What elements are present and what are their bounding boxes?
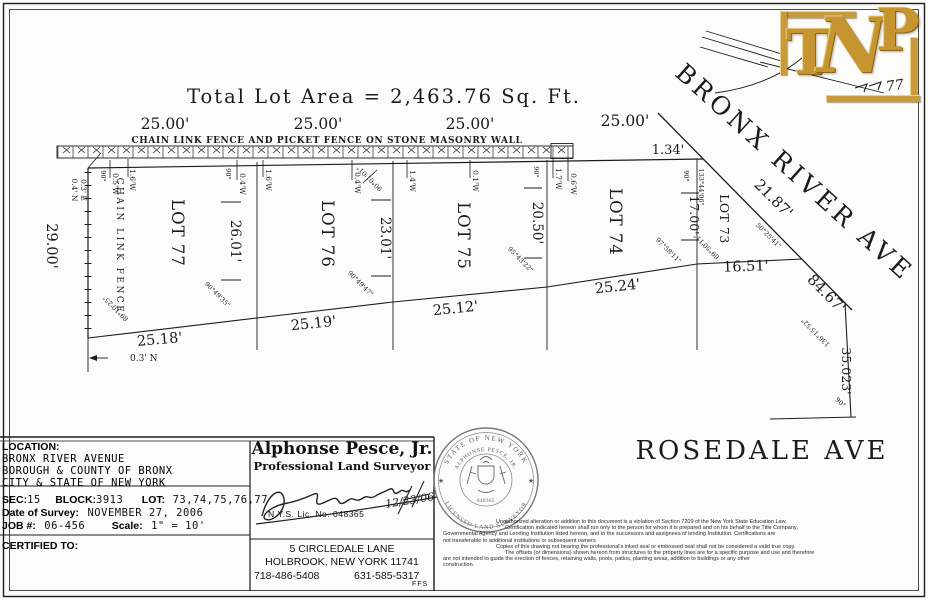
offset-04w-a: 0.4'W [238,173,247,195]
depth-2050: 20.50' [529,202,545,244]
license-number: N.Y.S. Lic. No. 048365 [268,509,364,519]
scale-label: Scale: [112,520,143,532]
offset-06w: 0.6'W [569,173,578,195]
offset-01w: 0.1'W [471,170,480,192]
bronx-dim-8467: 84.67' [804,270,850,316]
location-line-1: BRONX RIVER AVENUE [2,453,125,465]
lot-74-label: LOT 74 [606,188,625,256]
rosedale-ave-line [770,417,856,419]
frontage-dim-1: 25.00' [141,115,190,133]
fence-note: CHAIN LINK FENCE AND PICKET FENCE ON STO… [132,136,523,146]
surveyor-phone-2: 631-585-5317 [354,570,419,582]
angle-90-b: 90° [224,168,232,180]
surveyor-title: Professional Land Surveyor [250,459,434,473]
chain-link-fence-label: CHAIN LINK FENCE [114,178,124,315]
seal-crest [467,457,506,493]
surveyor-seal: STATE OF NEW YORK ALPHONSE PESCE, JR. LI… [434,428,538,532]
location-label: LOCATION: [2,441,60,453]
lot-75-label: LOT 75 [454,202,473,270]
angle-90-e: 90° [834,396,848,410]
location-line-3: CITY & STATE OF NEW YORK [2,477,166,489]
certified-to-label: CERTIFIED TO: [2,540,78,552]
surveyor-address-2: HOLBROOK, NEW YORK 11741 [250,556,434,568]
survey-document: Total Lot Area = 2,463.76 Sq. Ft. CHAIN … [0,0,928,600]
surveyor-phone-1: 718-486-5408 [254,570,319,582]
total-area-title: Total Lot Area = 2,463.76 Sq. Ft. [187,85,581,108]
depth-2301: 23.01' [377,217,393,259]
angle-90-a: 90° [99,170,107,182]
logo-bracket-bottom-icon [826,95,920,102]
offset-17w: 1.7'W [554,168,563,190]
angle-90-d: 90° [682,170,690,182]
frontage-dim-2: 25.00' [294,115,343,133]
surveyor-name: Alphonse Pesce, Jr. [250,439,434,459]
offset-05w: 0.5'W [111,173,120,195]
frontage-dim-4: 25.00' [601,112,650,130]
rosedale-ave-label: ROSEDALE AVE [635,436,888,466]
offset-14w: 1.4'W [408,170,417,192]
lot-76-label: LOT 76 [318,200,337,268]
rear-2524: 25.24' [594,277,641,298]
angle-1361552: 136°15'52" [800,317,832,349]
surveyor-address-1: 5 CIRCLEDALE LANE [250,543,434,555]
angle-1334406: 133°44'06" [697,169,705,206]
rear-1651: 16.51' [723,258,769,276]
initials: FFS [412,581,428,588]
logo-letter-p: P [876,1,920,59]
seal-star-right: ★ [528,477,534,485]
seal-license-number: 048365 [477,499,495,504]
angle-90-c: 90° [532,166,540,178]
job-scale-row: JOB #: 06-456 Scale: 1" = 10' [2,516,206,534]
angle-904947: 90°49'47" [346,269,375,298]
angle-695011: 69°50'11" [692,232,721,261]
corner-offset-n: 0.4' N [70,179,79,202]
rear-2519: 25.19' [290,314,337,335]
rear-boundary-line [88,259,802,338]
angle-975811: 97°58'11" [654,236,683,265]
east-dim-35023: 35.023' [839,347,854,394]
frontage-dim-3: 25.00' [446,115,495,133]
corner-offset-e: 0.3' E [79,179,88,201]
rear-2512: 25.12' [432,299,479,320]
offset-16w-a: 1.6'W [128,169,137,191]
front-boundary-line [88,159,703,168]
rear-2518: 25.18' [136,330,183,350]
offset-16w-b: 1.6'W [264,169,273,191]
depth-29: 29.00' [43,223,59,269]
lot-77-label: LOT 77 [168,199,187,267]
scale-value: 1" = 10' [151,520,206,532]
disclaimer-line: construction. [443,562,842,568]
job-value: 06-456 [44,520,85,532]
depth-2601: 26.01' [227,220,243,262]
north-offset-label: 0.3' N [130,354,158,364]
seal-star-left: ★ [438,477,444,485]
lot73-front-dim: 1.34' [652,143,685,158]
tnp-logo: T N P [770,0,928,112]
logo-scribble-77: 77 [885,77,905,95]
angle-904935: 90°49'35" [203,280,232,309]
disclaimer-block: Unauthorized alteration or addition to t… [440,519,842,569]
north-offset-arrow [89,355,108,361]
angle-954322: 95°43'22" [506,245,535,274]
lot-73-label: LOT 73 [717,194,732,244]
job-label: JOB #: [2,520,36,532]
location-line-2: BOROUGH & COUNTY OF BRONX [2,465,173,477]
